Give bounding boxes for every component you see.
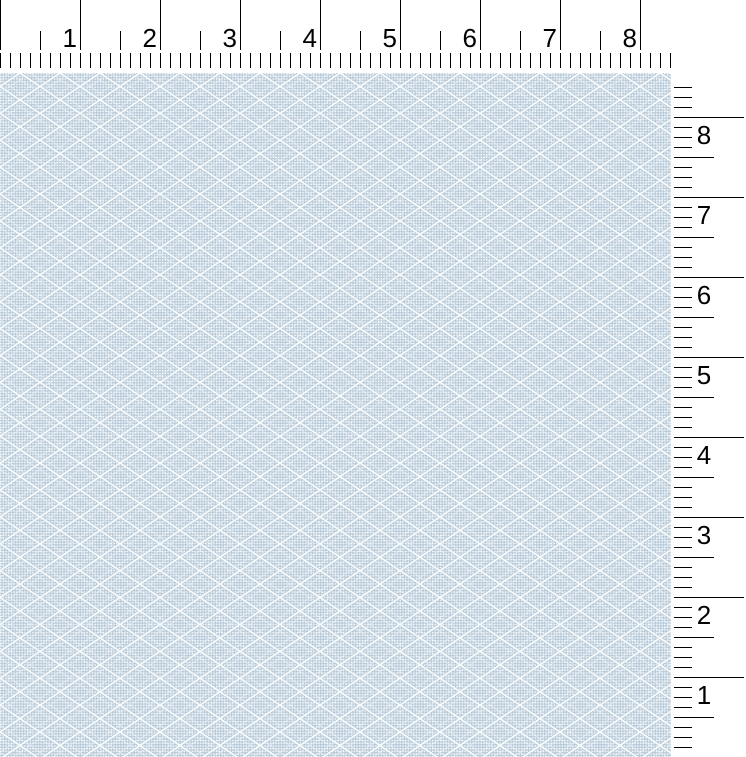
vertical-ruler-canvas: 87654321 [671,73,746,757]
h-ruler-label: 4 [303,23,317,53]
v-ruler-label: 8 [697,120,711,150]
h-ruler-label: 5 [383,23,397,53]
v-ruler-label: 2 [697,600,711,630]
h-ruler-ticks [1,0,671,68]
h-ruler-label: 1 [63,23,77,53]
fabric-pattern [0,73,671,757]
v-ruler-label: 1 [697,680,711,710]
v-ruler-label: 3 [697,520,711,550]
fabric-swatch [0,73,671,757]
fabric-preview-window: 12345678 87654321 [0,0,746,757]
vertical-ruler: 87654321 [671,73,746,757]
h-ruler-label: 7 [543,23,557,53]
horizontal-ruler: 12345678 [0,0,746,73]
h-ruler-label: 6 [463,23,477,53]
h-ruler-label: 3 [223,23,237,53]
h-ruler-label: 2 [143,23,157,53]
fabric-diamond-lattice [0,73,671,757]
v-ruler-label: 7 [697,200,711,230]
v-ruler-ticks [674,88,744,748]
horizontal-ruler-canvas: 12345678 [0,0,671,73]
v-ruler-label: 6 [697,280,711,310]
v-ruler-label: 5 [697,360,711,390]
v-ruler-label: 4 [697,440,711,470]
h-ruler-label: 8 [623,23,637,53]
